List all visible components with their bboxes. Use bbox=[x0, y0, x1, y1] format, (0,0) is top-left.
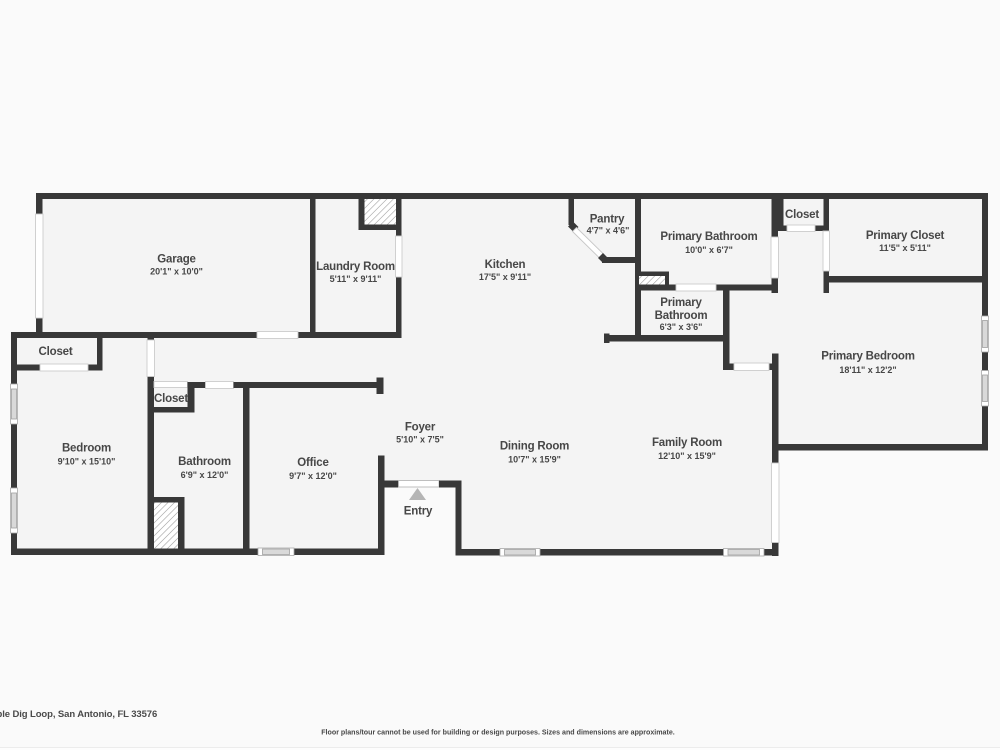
svg-text:Bathroom: Bathroom bbox=[655, 310, 708, 322]
svg-text:9'10" x 15'10": 9'10" x 15'10" bbox=[58, 457, 116, 467]
svg-text:9'7" x 12'0": 9'7" x 12'0" bbox=[289, 471, 337, 481]
svg-text:Bedroom: Bedroom bbox=[62, 443, 111, 455]
svg-text:Dining Room: Dining Room bbox=[500, 441, 569, 453]
svg-text:Entry: Entry bbox=[404, 506, 433, 518]
svg-text:Primary Closet: Primary Closet bbox=[866, 230, 945, 242]
svg-text:Pantry: Pantry bbox=[590, 214, 625, 226]
svg-text:Closet: Closet bbox=[154, 393, 188, 405]
svg-text:ble Dig Loop, San Antonio, FL: ble Dig Loop, San Antonio, FL 33576 bbox=[0, 709, 157, 720]
svg-text:Floor plans/tour cannot be use: Floor plans/tour cannot be used for buil… bbox=[321, 729, 675, 737]
svg-text:4'7" x 4'6": 4'7" x 4'6" bbox=[587, 226, 630, 236]
svg-text:18'11" x 12'2": 18'11" x 12'2" bbox=[839, 365, 896, 375]
svg-text:Primary: Primary bbox=[660, 297, 702, 309]
svg-text:11'5" x 5'11": 11'5" x 5'11" bbox=[879, 243, 931, 253]
svg-text:5'11" x 9'11": 5'11" x 9'11" bbox=[330, 274, 382, 284]
svg-text:Primary Bedroom: Primary Bedroom bbox=[821, 351, 915, 363]
svg-text:Office: Office bbox=[297, 457, 328, 469]
svg-text:Foyer: Foyer bbox=[405, 422, 436, 434]
svg-text:Closet: Closet bbox=[39, 346, 73, 358]
svg-text:Closet: Closet bbox=[785, 209, 819, 221]
svg-text:Family Room: Family Room bbox=[652, 437, 722, 449]
svg-text:Kitchen: Kitchen bbox=[485, 259, 526, 271]
svg-text:10'7" x 15'9": 10'7" x 15'9" bbox=[508, 455, 561, 465]
svg-text:5'10" x 7'5": 5'10" x 7'5" bbox=[396, 435, 444, 445]
svg-text:Primary Bathroom: Primary Bathroom bbox=[660, 231, 757, 243]
svg-text:6'3" x 3'6": 6'3" x 3'6" bbox=[660, 322, 703, 332]
svg-text:10'0" x 6'7": 10'0" x 6'7" bbox=[685, 245, 733, 255]
svg-text:Laundry Room: Laundry Room bbox=[316, 261, 395, 273]
svg-text:20'1" x 10'0": 20'1" x 10'0" bbox=[150, 267, 203, 277]
svg-text:6'9" x 12'0": 6'9" x 12'0" bbox=[181, 470, 229, 480]
svg-text:12'10" x 15'9": 12'10" x 15'9" bbox=[658, 451, 716, 461]
svg-text:Garage: Garage bbox=[157, 254, 195, 266]
svg-text:17'5" x 9'11": 17'5" x 9'11" bbox=[479, 272, 531, 282]
svg-text:Bathroom: Bathroom bbox=[178, 456, 231, 468]
